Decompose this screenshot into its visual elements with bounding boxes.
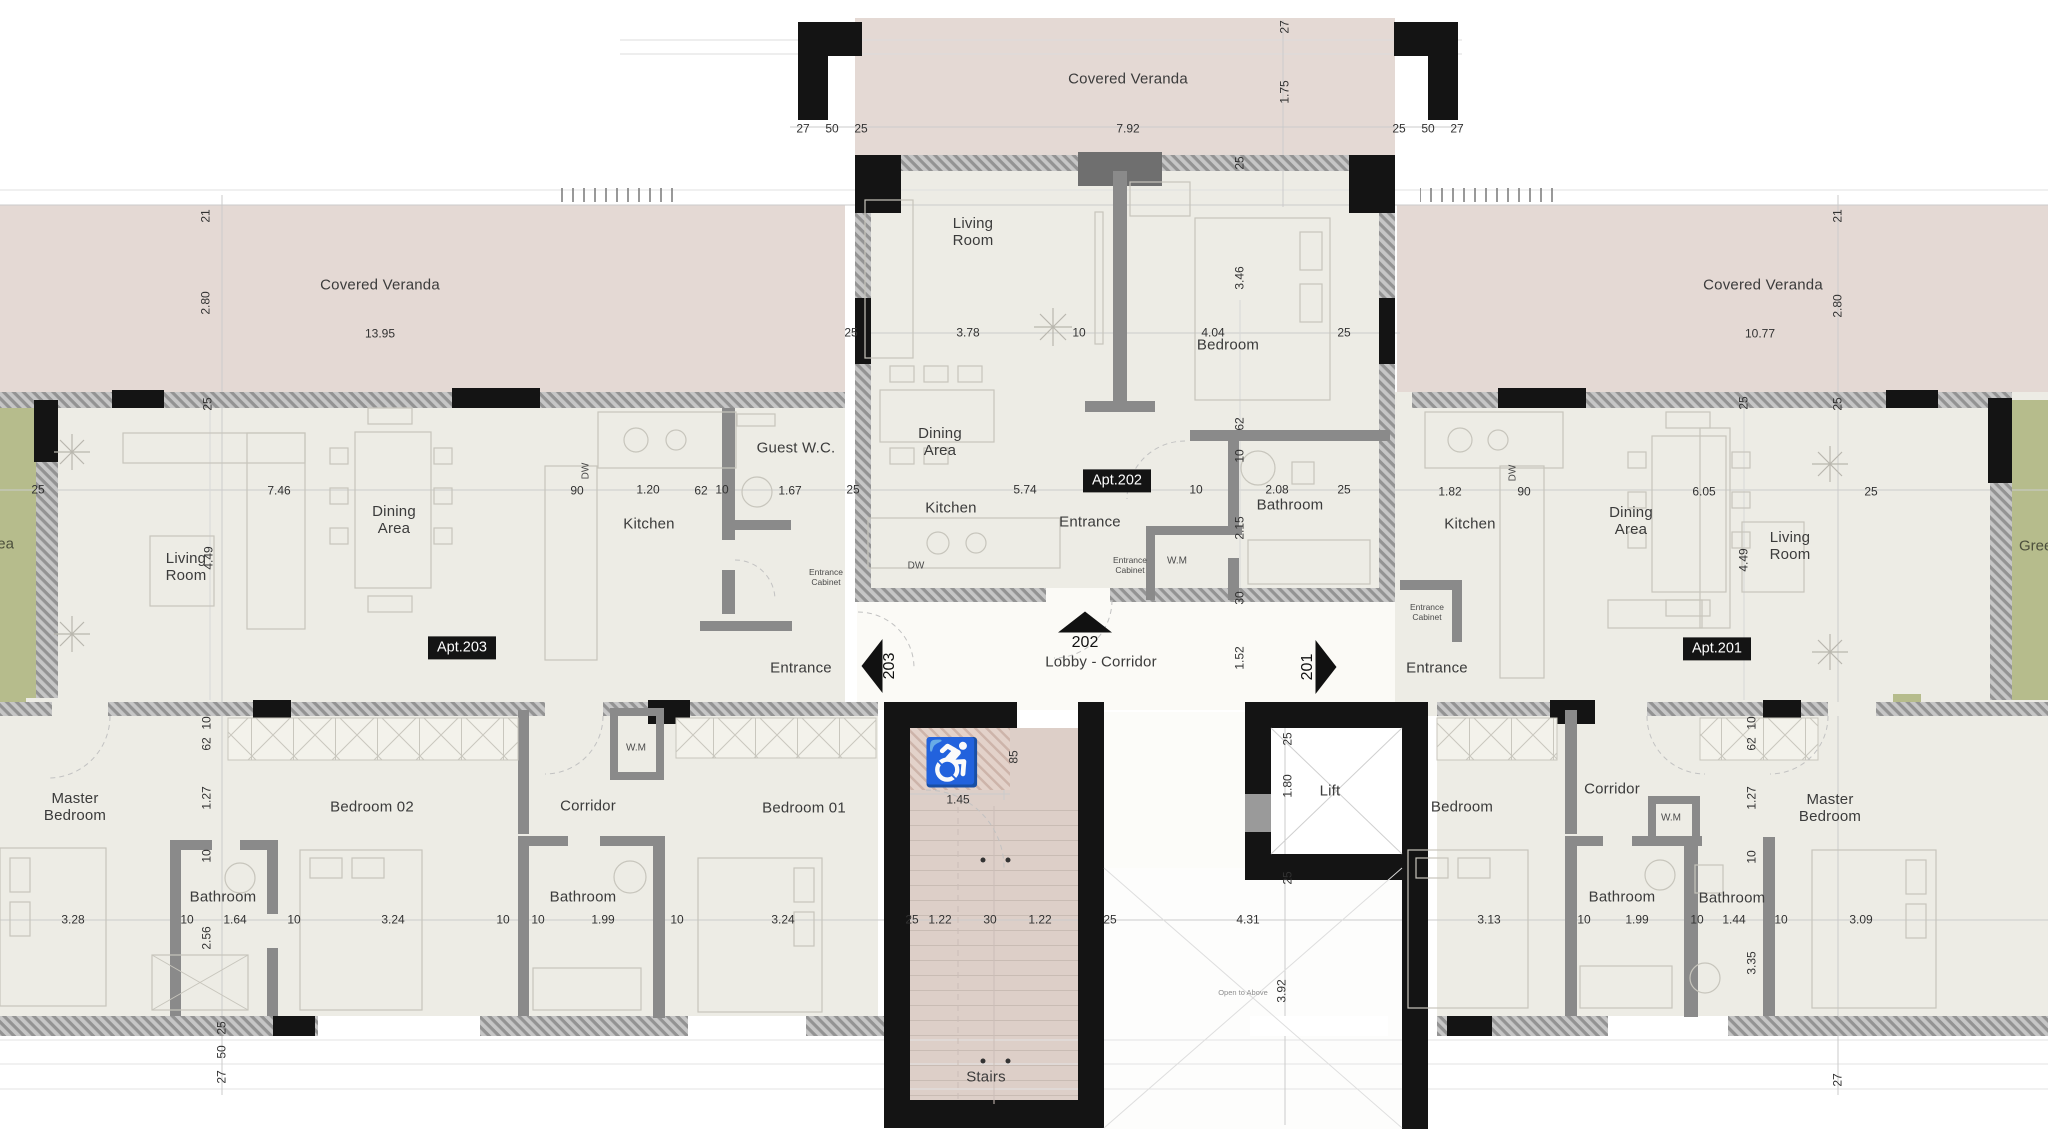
- room-label-entrance-202: Entrance: [1059, 515, 1121, 532]
- dim: 1.22: [928, 913, 951, 926]
- badge-apt-201: Apt.201: [1683, 637, 1751, 660]
- dim: 25: [844, 326, 857, 339]
- dim: 25: [201, 397, 214, 410]
- dim: 5.74: [1013, 483, 1036, 496]
- label-open-to-above: Open to Above: [1218, 989, 1268, 997]
- room-label-kitchen-201: Kitchen: [1444, 517, 1495, 534]
- dim: 10: [1577, 913, 1590, 926]
- dim: 10: [180, 913, 193, 926]
- room-label-green-area-left: Green Area: [0, 537, 14, 554]
- dim: 1.52: [1233, 646, 1246, 669]
- room-label-living-room-202: Living Room: [953, 216, 994, 250]
- room-label-bathroom-right1: Bathroom: [1589, 890, 1656, 907]
- arrow-unit-202-icon: [1058, 612, 1112, 633]
- dim: 10: [1745, 850, 1758, 863]
- room-label-kitchen-202: Kitchen: [925, 501, 976, 518]
- dim: 25: [1864, 485, 1877, 498]
- dim: 10: [496, 913, 509, 926]
- dim: 27: [215, 1070, 228, 1083]
- dim: 10: [1774, 913, 1787, 926]
- dim: 1.64: [223, 913, 246, 926]
- floor-plan: Covered Veranda7.921.7527275025255027Cov…: [0, 0, 2048, 1129]
- room-label-covered-veranda-center: Covered Veranda: [1068, 72, 1188, 89]
- dim: 1.27: [1745, 786, 1758, 809]
- room-label-master-bedroom-left: Master Bedroom: [44, 791, 106, 825]
- dim: 25: [1831, 397, 1844, 410]
- dim: 62: [200, 737, 213, 750]
- room-label-master-bedroom-right: Master Bedroom: [1799, 792, 1861, 826]
- room-label-lift: Lift: [1320, 784, 1341, 801]
- room-label-corridor-right: Corridor: [1584, 782, 1640, 799]
- dim: 10: [287, 913, 300, 926]
- dim: 3.78: [956, 326, 979, 339]
- dim: 1.27: [200, 786, 213, 809]
- dim: 3.13: [1477, 913, 1500, 926]
- dim: 2.08: [1265, 483, 1288, 496]
- room-label-bathroom-202: Bathroom: [1257, 498, 1324, 515]
- dim: 27: [796, 122, 809, 135]
- dim: 3.28: [61, 913, 84, 926]
- dim: 10: [1189, 483, 1202, 496]
- dim: 10: [1072, 326, 1085, 339]
- room-label-entrance-203: Entrance: [770, 661, 832, 678]
- dim: 1.75: [1278, 80, 1291, 103]
- dim: 10.77: [1745, 327, 1775, 340]
- dim: 25: [1281, 732, 1294, 745]
- arrow-unit-201-label: 201: [1299, 654, 1317, 681]
- dim: 1.45: [946, 793, 969, 806]
- dim: 25: [846, 483, 859, 496]
- room-label-covered-veranda-right: Covered Veranda: [1703, 278, 1823, 295]
- dim: 25: [1103, 913, 1116, 926]
- dim: 25: [1737, 396, 1750, 409]
- dim: 30: [1233, 591, 1246, 604]
- dim: 10: [670, 913, 683, 926]
- dim: 1.20: [636, 483, 659, 496]
- dim: 13.95: [365, 327, 395, 340]
- dim: 25: [215, 1021, 228, 1034]
- dim: 10: [1745, 716, 1758, 729]
- dim: 27: [1450, 122, 1463, 135]
- appliance-label-dw-202: DW: [908, 560, 925, 571]
- dim: 85: [1007, 750, 1020, 763]
- dim: 30: [983, 913, 996, 926]
- label-layer: Covered Veranda7.921.7527275025255027Cov…: [0, 0, 2048, 1129]
- label-entrance-cabinet-201: Entrance Cabinet: [1410, 603, 1444, 623]
- room-label-entrance-201: Entrance: [1406, 661, 1468, 678]
- appliance-label-wm-202: W.M: [1167, 555, 1187, 566]
- dim: 3.24: [771, 913, 794, 926]
- dim: 2.15: [1233, 516, 1246, 539]
- dim: 4.49: [1737, 548, 1750, 571]
- dim: 25: [1281, 871, 1294, 884]
- room-label-corridor-left: Corridor: [560, 799, 616, 816]
- arrow-unit-201-icon: [1316, 640, 1337, 694]
- room-label-lobby-corridor: Lobby - Corridor: [1045, 655, 1157, 672]
- dim: 25: [905, 913, 918, 926]
- dim: 25: [1392, 122, 1405, 135]
- dim: 1.80: [1281, 774, 1294, 797]
- dim: 21: [1831, 209, 1844, 222]
- dim: 21: [199, 209, 212, 222]
- dim: 10: [715, 483, 728, 496]
- arrow-unit-203-label: 203: [881, 653, 899, 680]
- dim: 3.46: [1233, 266, 1246, 289]
- room-label-dining-area-203: Dining Area: [372, 504, 416, 538]
- room-label-bedroom-02: Bedroom 02: [330, 800, 414, 817]
- dim: 4.04: [1201, 326, 1224, 339]
- dim: 50: [215, 1045, 228, 1058]
- room-label-bathroom-master-left: Bathroom: [190, 890, 257, 907]
- arrow-unit-203-icon: [862, 639, 883, 693]
- wheelchair-icon: ♿: [923, 739, 980, 785]
- dim: 1.67: [778, 484, 801, 497]
- label-entrance-cabinet-202: Entrance Cabinet: [1113, 556, 1147, 576]
- dim: 2.80: [199, 291, 212, 314]
- dim: 1.82: [1438, 485, 1461, 498]
- dim: 10: [1233, 449, 1246, 462]
- dim: 27: [1831, 1073, 1844, 1086]
- dim: 25: [31, 483, 44, 496]
- dim: 2.80: [1831, 294, 1844, 317]
- badge-apt-202: Apt.202: [1083, 469, 1151, 492]
- dim: 25: [1233, 156, 1246, 169]
- dim: 3.92: [1275, 979, 1288, 1002]
- badge-apt-203: Apt.203: [428, 636, 496, 659]
- room-label-dining-area-201: Dining Area: [1609, 505, 1653, 539]
- room-label-bedroom-202: Bedroom: [1197, 338, 1259, 355]
- room-label-living-room-201: Living Room: [1770, 530, 1811, 564]
- dim: 1.99: [1625, 913, 1648, 926]
- appliance-label-dw-201: DW: [1507, 465, 1518, 482]
- dim: 2.56: [200, 926, 213, 949]
- dim: 4.31: [1236, 913, 1259, 926]
- dim: 3.35: [1745, 951, 1758, 974]
- dim: 3.24: [381, 913, 404, 926]
- dim: 7.92: [1116, 122, 1139, 135]
- dim: 10: [531, 913, 544, 926]
- room-label-green-area-right: Green Area: [2019, 539, 2048, 556]
- dim: 62: [1745, 737, 1758, 750]
- room-label-dining-area-202: Dining Area: [918, 426, 962, 460]
- room-label-covered-veranda-left: Covered Veranda: [320, 278, 440, 295]
- appliance-label-wm-left: W.M: [626, 742, 646, 753]
- dim: 27: [1278, 20, 1291, 33]
- dim: 1.99: [591, 913, 614, 926]
- dim: 25: [854, 122, 867, 135]
- room-label-bathroom-right2: Bathroom: [1699, 891, 1766, 908]
- dim: 62: [1233, 417, 1246, 430]
- dim: 7.46: [267, 484, 290, 497]
- dim: 62: [694, 484, 707, 497]
- arrow-unit-202-label: 202: [1072, 634, 1099, 652]
- dim: 3.09: [1849, 913, 1872, 926]
- room-label-kitchen-203: Kitchen: [623, 517, 674, 534]
- dim: 50: [825, 122, 838, 135]
- appliance-label-wm-right: W.M: [1661, 812, 1681, 823]
- dim: 6.05: [1692, 485, 1715, 498]
- dim: 50: [1421, 122, 1434, 135]
- room-label-guest-wc-203: Guest W.C.: [757, 441, 836, 458]
- dim: 90: [1517, 485, 1530, 498]
- dim: 10: [200, 716, 213, 729]
- dim: 25: [1337, 483, 1350, 496]
- dim: 90: [570, 484, 583, 497]
- dim: 10: [200, 849, 213, 862]
- room-label-living-room-203: Living Room: [166, 551, 207, 585]
- room-label-bedroom-01: Bedroom 01: [762, 801, 846, 818]
- room-label-bathroom-left: Bathroom: [550, 890, 617, 907]
- dim: 1.44: [1722, 913, 1745, 926]
- appliance-label-dw-203: DW: [580, 463, 591, 480]
- dim: 25: [1337, 326, 1350, 339]
- dim: 10: [1690, 913, 1703, 926]
- room-label-stairs: Stairs: [966, 1070, 1006, 1087]
- dim: 1.22: [1028, 913, 1051, 926]
- label-entrance-cabinet-203: Entrance Cabinet: [809, 568, 843, 588]
- dim: 4.49: [202, 546, 215, 569]
- room-label-bedroom-right: Bedroom: [1431, 800, 1493, 817]
